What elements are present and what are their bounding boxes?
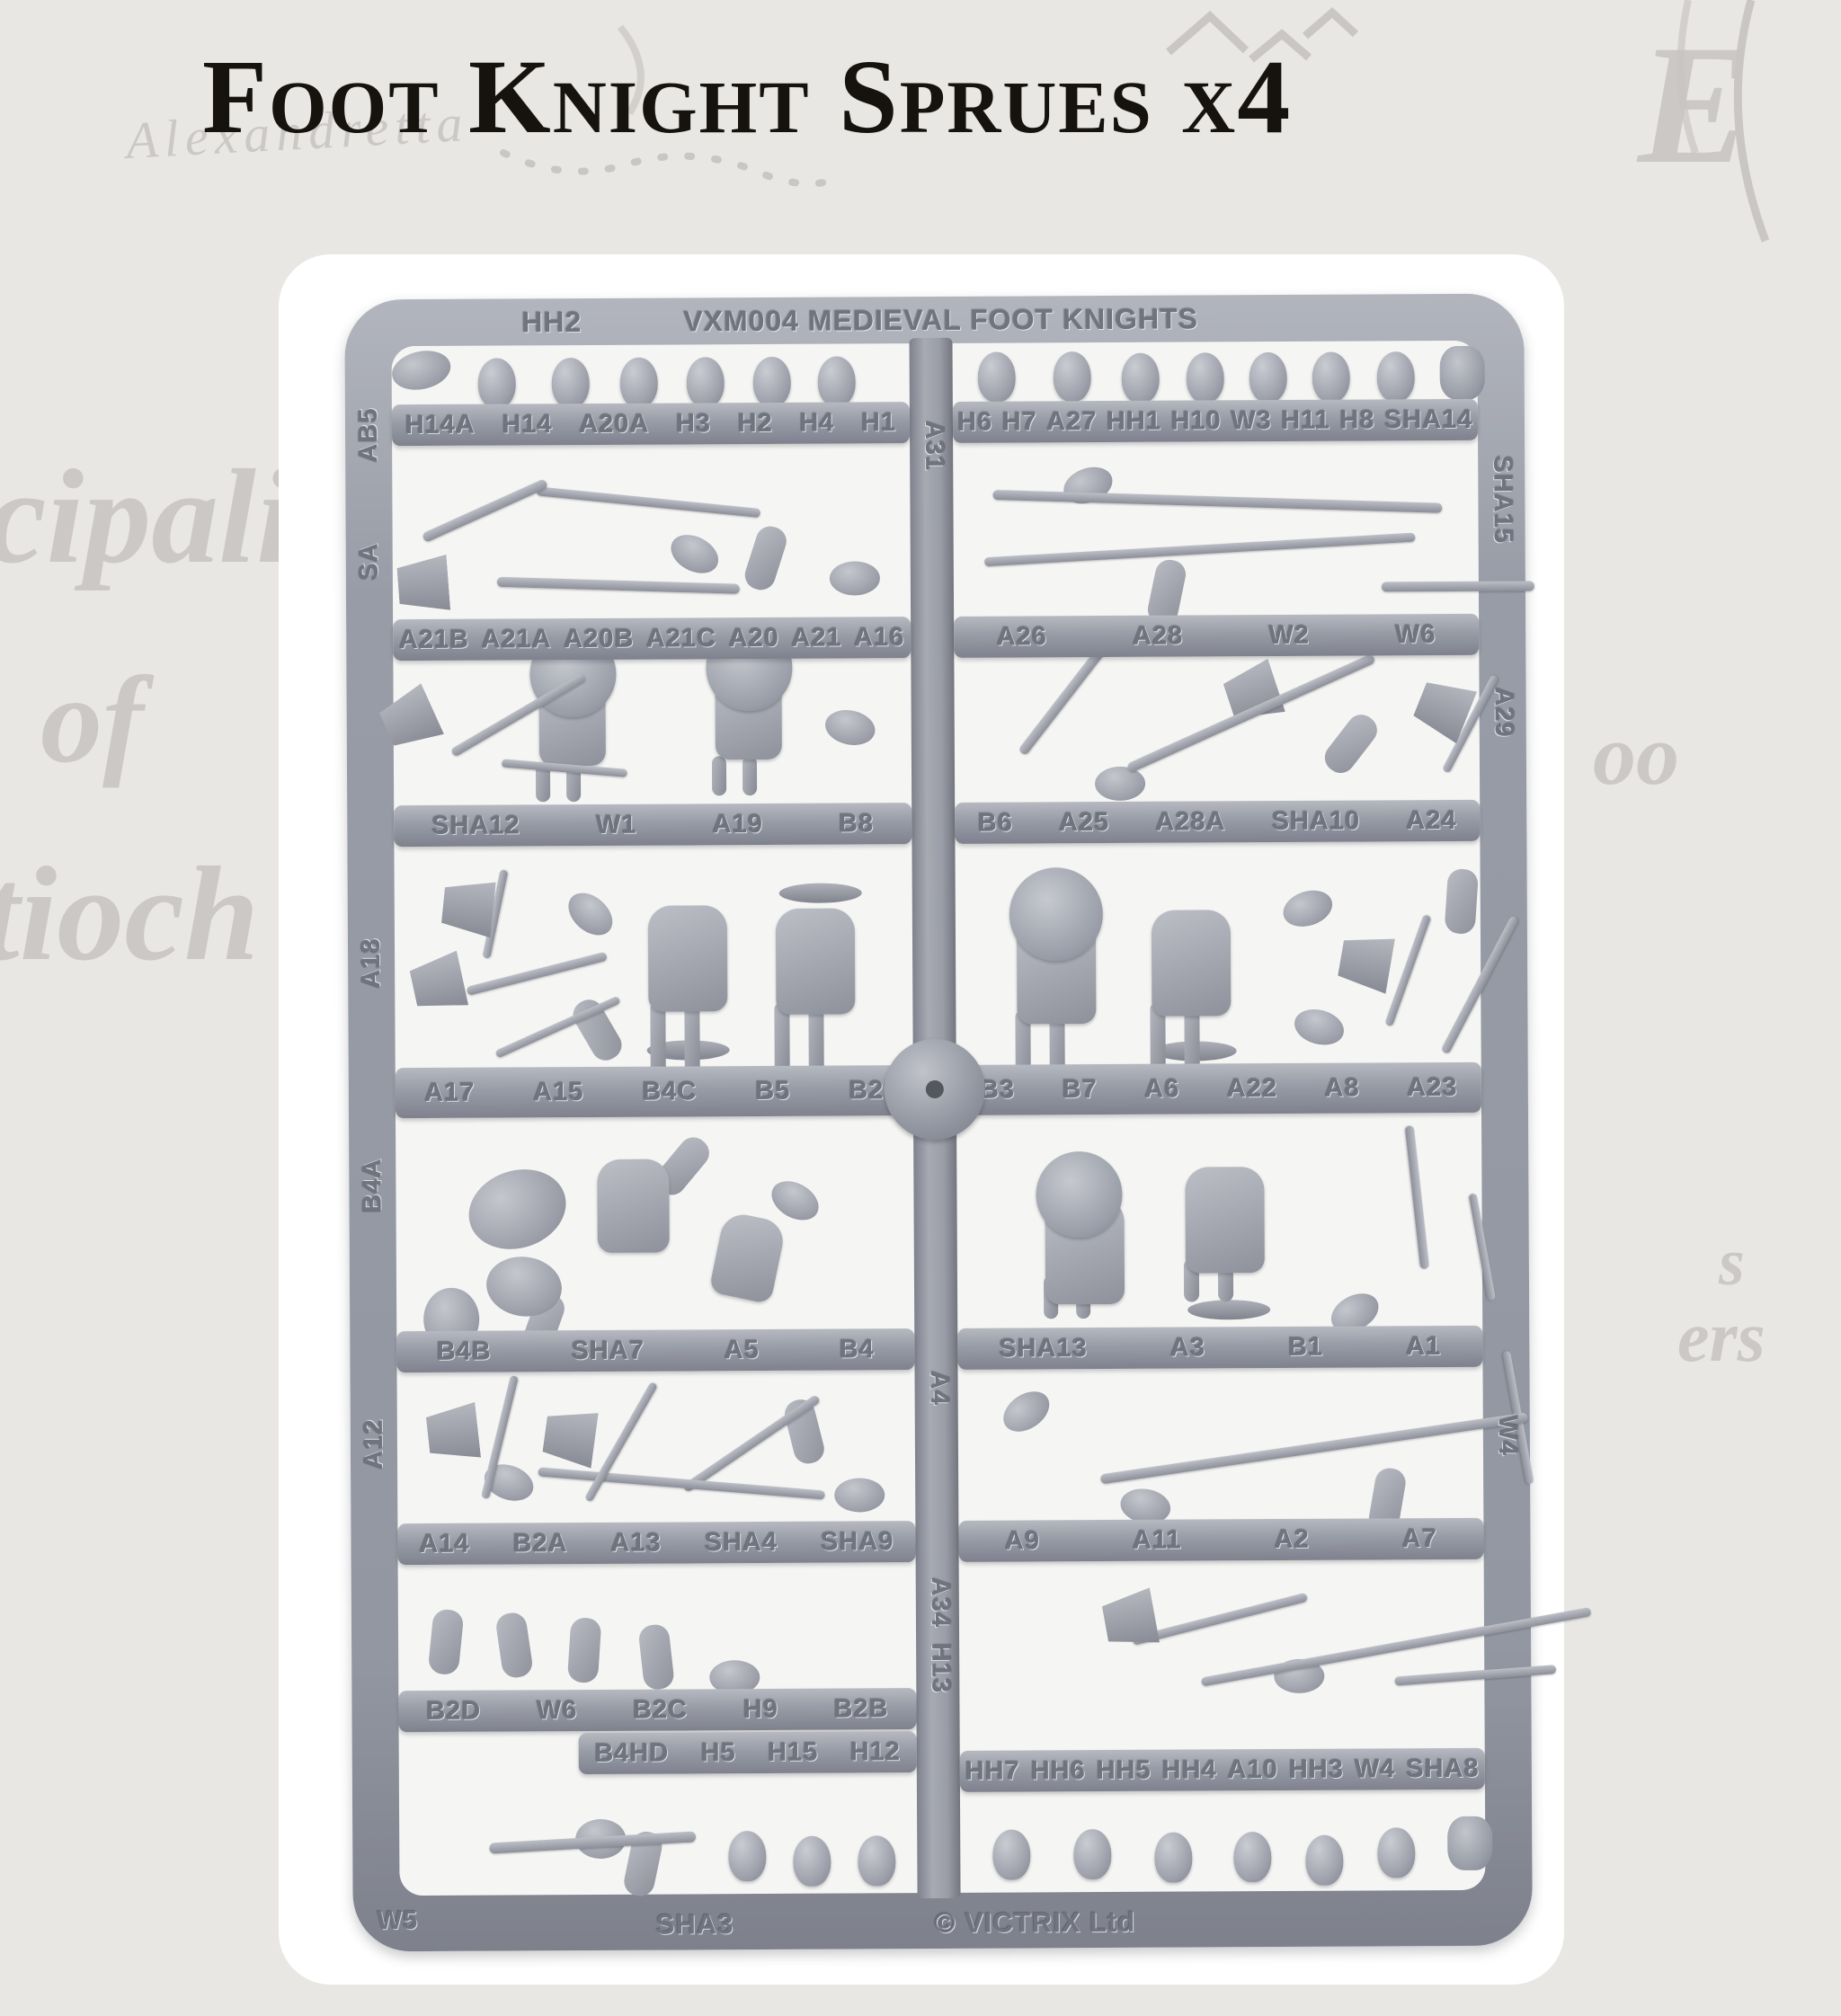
- sprue-rail: B2DW6B2CH9B2B: [398, 1688, 916, 1732]
- part-label: A2: [1275, 1524, 1310, 1554]
- part-label-vertical: SHA15: [1487, 456, 1517, 545]
- part-label: A21A: [482, 625, 552, 654]
- part-label: B4: [840, 1335, 875, 1364]
- part-label: B8: [839, 809, 874, 839]
- part-label: B2: [849, 1076, 884, 1106]
- sprue-part-rod: [422, 478, 548, 543]
- sprue-part-rod: [1405, 1125, 1429, 1269]
- part-label: W2: [1268, 620, 1310, 650]
- sprue-rail: B4BSHA7A5B4: [396, 1328, 914, 1372]
- sprue-part-rod: [984, 533, 1416, 567]
- part-label-vertical: W4: [1492, 1416, 1522, 1457]
- sprue-part-head: [1305, 1835, 1343, 1886]
- part-label: W4: [1355, 1754, 1396, 1784]
- sprue-product-code-label: VXM004 MEDIEVAL FOOT KNIGHTS: [683, 302, 1198, 338]
- part-label: A28A: [1155, 807, 1225, 837]
- sprue-part-torso: [708, 1211, 787, 1304]
- sprue-part-torso: [1152, 910, 1232, 1016]
- sprue-part-wedge: [375, 683, 444, 755]
- sprue-part-sleeve: [742, 523, 790, 594]
- part-label: W3: [1231, 406, 1272, 436]
- sprue-part-sleeve: [1444, 868, 1479, 935]
- part-label: A21: [791, 623, 841, 653]
- sprue-part-head: [1377, 1827, 1415, 1878]
- part-label-vertical: H13: [925, 1643, 955, 1693]
- part-label: SHA10: [1272, 806, 1361, 837]
- sprue-top-left-label: HH2: [521, 306, 582, 339]
- sprue-part-rod: [992, 490, 1442, 513]
- sprue-part-head: [1054, 351, 1091, 402]
- sprue-rail: H6H7A27HH1H10W3H11H8SHA14: [953, 399, 1478, 443]
- sprue-part-torso: [776, 908, 856, 1014]
- part-label: A25: [1059, 807, 1109, 837]
- sprue-part-coif: [1447, 1816, 1492, 1870]
- sprue-part-wedge: [396, 555, 450, 614]
- part-label: W6: [1395, 620, 1436, 650]
- sprue-part-head: [858, 1835, 895, 1886]
- sprue-part-sleeve: [494, 1611, 534, 1679]
- part-label: A19: [713, 809, 763, 839]
- part-label: B2B: [834, 1694, 889, 1724]
- part-label: B2A: [513, 1529, 568, 1559]
- part-label-vertical: A29: [1489, 688, 1518, 738]
- sprue-part-disc: [1009, 867, 1104, 962]
- sprue-part-head: [1233, 1832, 1271, 1882]
- sprue-part-blob: [765, 1173, 825, 1228]
- sprue-part-rod: [1440, 915, 1519, 1054]
- sprue-rail: H14AH14A20AH3H2H4H1: [392, 402, 910, 446]
- part-label: W1: [596, 810, 637, 839]
- sprue-rail: A17A15B4CB5B2: [396, 1065, 913, 1118]
- sprue-part-blob: [822, 706, 878, 750]
- sprue: H14AH14A20AH3H2H4H1H6H7A27HH1H10W3H11H8S…: [0, 0, 1841, 2016]
- sprue-part-rod: [497, 577, 740, 594]
- sprue-part-leg: [712, 756, 726, 795]
- sprue-rail: B6A25A28ASHA10A24: [955, 800, 1480, 844]
- part-label-vertical: B4A: [358, 1158, 387, 1212]
- part-label: HH4: [1162, 1755, 1217, 1785]
- part-label: A26: [997, 622, 1047, 652]
- sprue-part-head: [1154, 1833, 1192, 1883]
- part-label: HH7: [965, 1756, 1020, 1786]
- sprue-part-coif: [1440, 346, 1485, 400]
- sprue-part-rod: [537, 486, 761, 518]
- part-label: B3: [980, 1075, 1015, 1105]
- sprue-bottom-center-label: SHA3: [656, 1908, 734, 1941]
- part-label-vertical: A31: [919, 421, 948, 471]
- part-label: H7: [1002, 407, 1037, 437]
- sprue-rail: SHA12W1A19B8: [394, 803, 912, 847]
- part-label: H15: [768, 1737, 818, 1767]
- part-label-vertical: A34: [925, 1577, 955, 1628]
- part-label: A9: [1005, 1526, 1040, 1556]
- sprue-rail: A26A28W2W6: [954, 614, 1479, 658]
- part-label: A5: [725, 1336, 760, 1365]
- sprue-part-torso: [1185, 1167, 1265, 1273]
- part-label: B1: [1288, 1332, 1323, 1362]
- sprue-part-blob: [1278, 884, 1337, 933]
- part-label: A7: [1402, 1524, 1437, 1554]
- sprue-part-sleeve: [428, 1608, 465, 1675]
- part-label: HH3: [1289, 1754, 1344, 1784]
- sprue-rail: A21BA21AA20BA21CA20A21A16: [393, 617, 911, 661]
- part-label-vertical: SA: [355, 542, 385, 580]
- part-label: B2C: [633, 1695, 688, 1725]
- part-label: SHA12: [431, 811, 520, 841]
- part-label: H14A: [405, 410, 476, 440]
- sprue-part-rod: [1469, 1193, 1496, 1301]
- sprue-part-wedge: [440, 877, 496, 937]
- part-label: H12: [850, 1737, 901, 1767]
- sprue-bottom-left-label: W5: [378, 1906, 419, 1936]
- sprue-rail: A14B2AA13SHA4SHA9: [397, 1521, 915, 1565]
- sprue-part-head: [1312, 352, 1350, 403]
- part-label: A3: [1170, 1333, 1205, 1363]
- part-label: SHA14: [1384, 404, 1473, 435]
- sprue-part-rod: [1394, 1665, 1556, 1685]
- sprue-rail: HH7HH6HH5HH4A10HH3W4SHA8: [960, 1748, 1485, 1792]
- sprue-part-disc: [1036, 1151, 1123, 1239]
- part-label: B4HD: [594, 1738, 669, 1768]
- part-label: H2: [738, 408, 773, 438]
- sprue-part-head: [992, 1829, 1030, 1879]
- part-label: B6: [978, 808, 1013, 838]
- sprue-part-blob: [664, 528, 725, 582]
- part-label: B2D: [426, 1696, 481, 1726]
- part-label: A21B: [399, 625, 469, 654]
- part-label: A22: [1227, 1074, 1277, 1104]
- sprue-part-head: [793, 1836, 831, 1887]
- sprue-part-blob: [1290, 1004, 1347, 1051]
- part-label: A11: [1133, 1525, 1182, 1555]
- part-label: H10: [1171, 406, 1222, 436]
- sprue-part-head: [978, 352, 1016, 403]
- sprue-part-wedge: [541, 1407, 599, 1469]
- part-label: A15: [533, 1078, 583, 1107]
- part-label: A8: [1325, 1073, 1360, 1103]
- sprue-part-head: [818, 356, 856, 406]
- sprue-part-sleeve: [637, 1623, 675, 1691]
- sprue-part-rod: [1382, 582, 1534, 592]
- part-label: A14: [419, 1529, 469, 1559]
- sprue-part-head: [753, 357, 791, 407]
- sprue-part-head: [1250, 352, 1287, 403]
- part-label-vertical: AB5: [354, 407, 384, 462]
- part-label: A20B: [564, 624, 634, 653]
- part-label-vertical: A12: [360, 1418, 389, 1469]
- part-label: A23: [1407, 1072, 1457, 1102]
- part-label: SHA4: [705, 1527, 778, 1557]
- sprue-part-rod: [1100, 1412, 1529, 1484]
- part-label: H1: [861, 408, 896, 438]
- sprue-rail: SHA13A3B1A1: [957, 1326, 1482, 1370]
- sprue-part-wedge: [407, 951, 468, 1017]
- sprue-part-blob: [996, 1383, 1057, 1440]
- sprue-part-blob: [388, 345, 454, 395]
- sprue-part-leg: [743, 756, 757, 795]
- part-label: A1: [1406, 1332, 1441, 1362]
- part-label: A6: [1144, 1074, 1179, 1104]
- part-label: B5: [755, 1076, 790, 1106]
- part-label: HH5: [1097, 1755, 1152, 1785]
- part-label: H3: [676, 409, 711, 439]
- part-label: SHA13: [999, 1334, 1088, 1364]
- sprue-part-blob: [830, 561, 880, 595]
- sprue-part-head: [687, 357, 725, 407]
- part-label: HH6: [1031, 1756, 1086, 1786]
- part-label: H6: [957, 407, 992, 437]
- part-label: A21C: [646, 624, 716, 653]
- sprue-part-head: [1377, 351, 1415, 402]
- part-label: B7: [1063, 1075, 1098, 1105]
- sprue-hub: [885, 1039, 986, 1141]
- part-label: A17: [424, 1078, 475, 1107]
- sprue-part-head: [478, 358, 516, 408]
- sprue-maker-label: © VICTRIX Ltd: [935, 1906, 1136, 1940]
- part-label: B4B: [437, 1337, 492, 1366]
- sprue-part-torso: [597, 1159, 670, 1253]
- sprue-part-base: [779, 883, 862, 902]
- sprue-part-head: [1187, 352, 1224, 403]
- part-label: A13: [611, 1528, 662, 1558]
- sprue-rail: B3B7A6A22A8A23: [956, 1062, 1481, 1115]
- part-label: H5: [701, 1738, 736, 1768]
- sprue-part-blob: [834, 1478, 885, 1512]
- part-label: H4: [799, 408, 834, 438]
- part-label: A27: [1046, 407, 1097, 437]
- part-label: SHA7: [572, 1336, 645, 1365]
- part-label: HH1: [1107, 406, 1161, 436]
- part-label: B4C: [642, 1077, 697, 1106]
- part-label: W6: [537, 1696, 578, 1726]
- sprue-part-sleeve: [567, 1617, 602, 1683]
- part-label: A16: [854, 623, 904, 653]
- part-label: H9: [743, 1694, 778, 1724]
- sprue-part-head: [728, 1831, 766, 1881]
- part-label: A20A: [579, 409, 649, 439]
- part-label: H14: [502, 410, 552, 440]
- sprue-part-base: [1187, 1300, 1270, 1319]
- part-label: A10: [1228, 1755, 1278, 1785]
- sprue-part-head: [1073, 1829, 1111, 1879]
- part-label: H8: [1339, 405, 1374, 435]
- sprue-part-head: [1122, 353, 1160, 404]
- sprue-part-blob: [560, 884, 620, 944]
- part-label: A20: [729, 623, 779, 653]
- sprue-part-sleeve: [1319, 709, 1383, 779]
- sprue-part-rod: [1384, 914, 1431, 1026]
- sprue-part-wedge: [425, 1402, 481, 1463]
- sprue-part-torso: [648, 905, 728, 1011]
- sprue-part-rod: [538, 1467, 825, 1499]
- sprue-rail: A9A11A2A7: [958, 1518, 1483, 1562]
- part-label: H11: [1281, 405, 1330, 435]
- part-label-vertical: A4: [923, 1371, 953, 1406]
- part-label: A28: [1133, 621, 1183, 651]
- part-label: SHA9: [821, 1527, 894, 1557]
- sprue-rail: B4HDH5H15H12: [579, 1731, 917, 1774]
- part-label: A24: [1406, 805, 1456, 835]
- sprue-part-head: [620, 358, 658, 408]
- part-label: SHA8: [1406, 1754, 1480, 1783]
- sprue-part-head: [552, 358, 590, 408]
- sprue-part-blob: [458, 1157, 576, 1261]
- sprue-part-blob: [1095, 767, 1145, 801]
- sprue-part-wedge: [1100, 1587, 1160, 1651]
- sprue-part-wedge: [1336, 930, 1395, 994]
- part-label-vertical: A18: [357, 937, 387, 988]
